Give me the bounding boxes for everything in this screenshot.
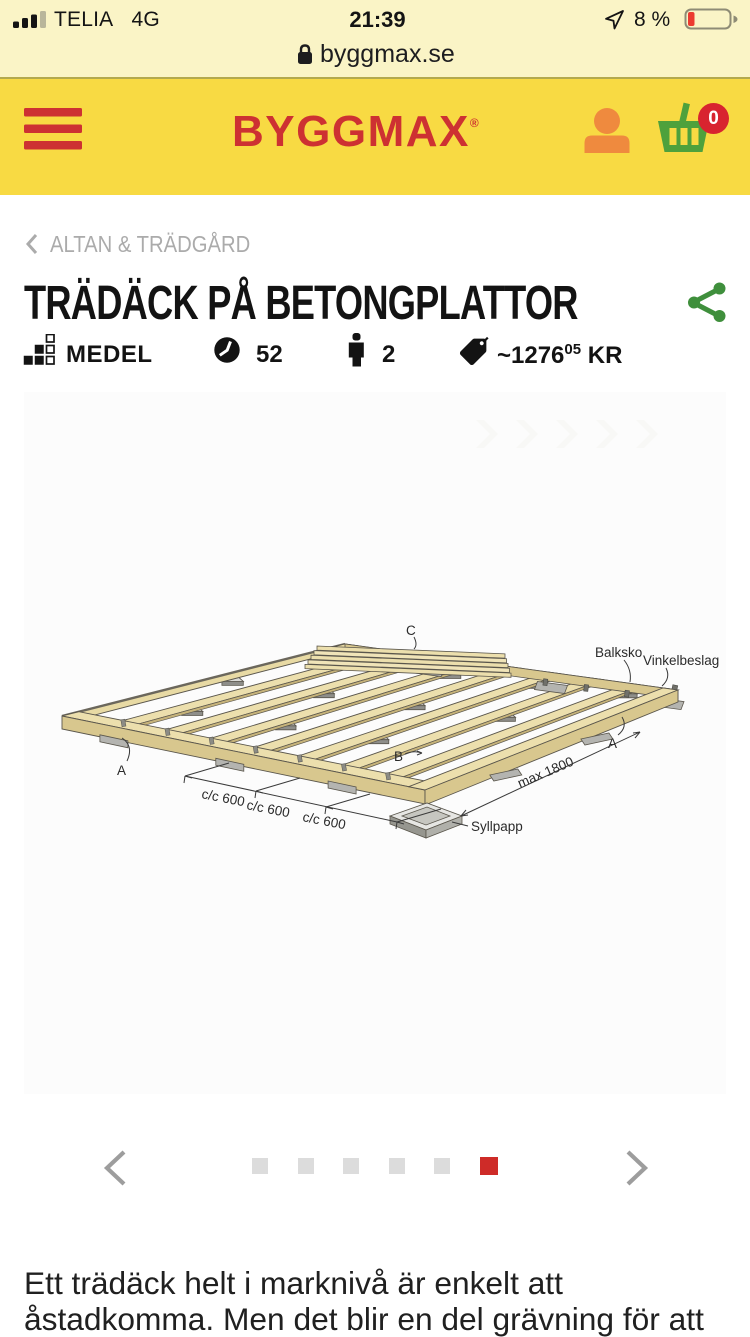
svg-text:Balksko: Balksko bbox=[595, 645, 642, 660]
svg-text:Syllpapp: Syllpapp bbox=[471, 819, 523, 834]
svg-text:Vinkelbeslag: Vinkelbeslag bbox=[643, 653, 719, 668]
svg-text:C: C bbox=[406, 623, 416, 638]
svg-text:c/c 600: c/c 600 bbox=[245, 797, 291, 820]
svg-text:c/c 600: c/c 600 bbox=[200, 786, 246, 809]
svg-text:B: B bbox=[394, 749, 403, 764]
svg-text:A: A bbox=[117, 763, 126, 778]
svg-text:c/c 600: c/c 600 bbox=[301, 809, 347, 832]
